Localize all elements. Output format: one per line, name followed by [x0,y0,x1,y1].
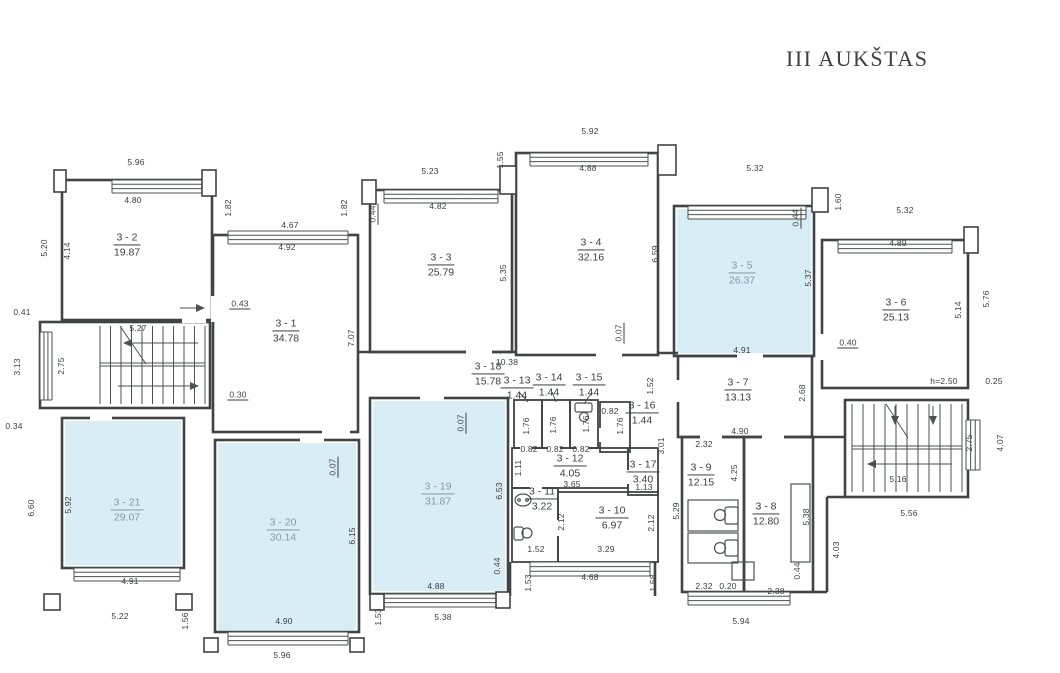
dimension-label: 4.88 [579,163,596,173]
dimension-label: 6.59 [650,245,660,262]
dimension-label: 0.07 [456,412,467,433]
dimension-label: 0.44 [368,203,379,224]
dimension-label: 6.15 [347,527,357,544]
room-number: 3 - 3 [427,251,454,265]
room-label: 3 - 151.44 [573,371,606,398]
dimension-label: 5.35 [498,264,508,281]
room-label: 3 - 713.13 [724,376,751,403]
dimension-label: 6.60 [26,499,36,516]
staircase-left [100,326,205,404]
dimension-label: 0.40 [837,338,858,349]
dimension-label: 1.76 [548,416,558,433]
room-area: 12.80 [752,515,779,528]
room-number: 3 - 9 [687,461,714,475]
dimension-label: 4.90 [275,616,292,626]
dimension-label: 0.07 [328,456,339,477]
room-label: 3 - 526.37 [728,259,755,286]
room-label: 3 - 124.05 [554,452,587,479]
dimension-label: 1.82 [339,199,349,216]
staircase-right [852,404,962,492]
room-number: 3 - 15 [573,371,606,385]
dimension-label: 4.82 [429,201,446,211]
room-number: 3 - 19 [422,480,455,494]
dimension-label: 5.27 [129,323,146,333]
dimension-label: 1.76 [581,415,591,432]
dimension-label: 1.82 [223,199,233,216]
dimension-label: 5.22 [111,611,128,621]
dimension-label: 1.58 [648,574,658,591]
dimension-label: 4.91 [733,345,750,355]
room-number: 3 - 21 [111,496,144,510]
dimension-label: 0.82 [546,444,563,454]
dimension-label: 0.34 [5,421,22,431]
dimension-label: 4.89 [889,238,906,248]
room-number: 3 - 17 [627,458,660,472]
dimension-label: 1.52 [527,544,544,554]
dimension-label: 1.55 [495,151,505,168]
dimension-label: 5.32 [746,163,763,173]
room-number: 3 - 7 [724,376,751,390]
room-area: 15.78 [472,375,505,388]
dimension-label: 4.80 [124,195,141,205]
room-label: 3 - 2129.07 [111,496,144,523]
room-label: 3 - 113.22 [526,485,558,512]
room-area: 1.44 [501,389,534,402]
page-title: III AUKŠTAS [786,46,928,72]
dimension-label: 0.82 [572,444,589,454]
room-area: 4.05 [554,467,587,480]
window-icon [688,206,806,219]
dimension-label: 5.96 [127,157,144,167]
room-area: 1.44 [533,386,566,399]
dimension-label: 5.92 [63,496,73,513]
room-area: 25.79 [427,266,454,279]
dimension-label: 4.92 [278,242,295,252]
dimension-label: 0.30 [227,390,248,401]
dimension-label: 4.14 [62,242,72,259]
room-number: 3 - 10 [596,504,629,518]
dimension-label: 1.13 [635,482,652,492]
dimension-label: 2.68 [797,384,807,401]
dimension-label: 5.96 [273,650,290,660]
room-area: 32.16 [577,251,604,264]
dimension-label: 5.29 [671,502,681,519]
dimension-label: 1.76 [615,417,625,434]
room-area: 13.13 [724,391,751,404]
dimension-label: 1.52 [645,377,655,394]
dimension-label: 2.32 [695,439,712,449]
dimension-label: 0.82 [601,406,618,416]
room-label: 3 - 161.44 [626,399,659,426]
room-area: 30.14 [267,531,300,544]
room-number: 3 - 4 [577,236,604,250]
dimension-label: 2.32 [695,581,712,591]
room-number: 3 - 12 [554,452,587,466]
dimension-label: 0.44 [492,557,502,574]
dimension-label: 5.92 [581,126,598,136]
room-area: 3.22 [526,500,558,513]
room-label: 3 - 812.80 [752,500,779,527]
dimension-label: 4.88 [427,581,444,591]
dimension-label: 1.53 [523,574,533,591]
room-label: 3 - 432.16 [577,236,604,263]
dimension-label: 3.65 [563,479,580,489]
dimension-label: 0.43 [229,299,250,310]
dimension-label: 3.13 [12,358,22,375]
room-label: 3 - 141.44 [533,371,566,398]
dimension-label: 4.90 [731,426,748,436]
room-label: 3 - 325.79 [427,251,454,278]
room-highlight [65,421,181,565]
dimension-label: 5.37 [803,269,813,286]
toilet-icon [575,403,592,412]
room-label: 3 - 912.15 [687,461,714,488]
room-number: 3 - 6 [882,296,909,310]
room-area: 1.44 [573,386,606,399]
dimension-label: 0.25 [985,376,1002,386]
room-number: 3 - 11 [526,485,558,499]
dimension-label: 4.68 [581,572,598,582]
room-area: 26.37 [728,274,755,287]
dimension-label: 5.32 [896,205,913,215]
room-label: 3 - 219.87 [113,231,140,258]
dimension-label: 10.38 [496,357,518,367]
dimension-label: 5.14 [953,301,963,318]
dimension-label: 2.38 [767,586,784,596]
dimension-label: 4.07 [995,434,1005,451]
dimension-label: 5.23 [421,166,438,176]
dimension-label: 0.44 [792,562,802,579]
dimension-label: 0.07 [614,322,625,343]
room-number: 3 - 2 [113,231,140,245]
room-area: 29.07 [111,511,144,524]
room-area: 12.15 [687,476,714,489]
dimension-label: 0.20 [719,581,736,591]
dimension-label: 0.82 [520,444,537,454]
dimension-label: 5.56 [900,508,917,518]
room-area: 25.13 [882,311,909,324]
dimension-label: 1.56 [180,612,190,629]
dimension-label: 0.41 [13,307,30,317]
dimension-label: 2.12 [556,513,566,530]
dimension-label: 1.11 [513,460,523,477]
dimension-label: 6.53 [494,482,504,499]
room-label: 3 - 131.44 [501,374,534,401]
dimension-label: 5.76 [981,290,991,307]
dimension-label: 4.25 [729,464,739,481]
room-area: 19.87 [113,246,140,259]
room-number: 3 - 8 [752,500,779,514]
window-icon [228,632,348,645]
room-number: 3 - 20 [267,516,300,530]
dimension-label: 7.07 [346,329,356,346]
dimension-label: 1.60 [833,193,843,210]
dimension-label: 1.76 [521,417,531,434]
toilet-icon [715,510,726,521]
floorplan: III AUKŠTAS 3 - 134.783 - 219.873 - 325.… [0,0,1060,673]
dimension-label: 1.53 [373,608,383,625]
room-label: 3 - 2030.14 [267,516,300,543]
room-area: 34.78 [272,332,299,345]
dimension-label: 5.94 [732,616,749,626]
room-number: 3 - 14 [533,371,566,385]
window-icon [40,332,52,400]
room-number: 3 - 13 [501,374,534,388]
dimension-label: 3.29 [597,544,614,554]
dimension-label: 4.91 [121,576,138,586]
dimension-label: h=2.50 [930,376,957,386]
dimension-label: 5.38 [434,612,451,622]
room-label: 3 - 106.97 [596,504,629,531]
dimension-label: 5.38 [801,508,811,525]
dimension-label: 2.75 [56,357,66,374]
dimension-label: 2.75 [964,434,974,451]
toilet-icon [715,543,726,554]
dimension-label: 5.20 [39,239,49,256]
room-number: 3 - 16 [626,399,659,413]
dimension-label: 4.03 [831,541,841,558]
dimension-label: 4.67 [281,220,298,230]
room-label: 3 - 134.78 [272,317,299,344]
room-label: 3 - 625.13 [882,296,909,323]
window-icon [112,180,207,193]
dimension-label: 0.44 [791,207,802,228]
room-number: 3 - 5 [728,259,755,273]
room-label: 3 - 1931.87 [422,480,455,507]
room-area: 31.87 [422,495,455,508]
window-icon [384,594,500,607]
room-number: 3 - 1 [272,317,299,331]
floorplan-drawing [0,0,1060,673]
room-area: 6.97 [596,519,629,532]
dimension-label: 3.01 [656,437,666,454]
room-area: 1.44 [626,414,659,427]
dimension-label: 2.12 [646,514,656,531]
dimension-label: 5.16 [889,474,906,484]
